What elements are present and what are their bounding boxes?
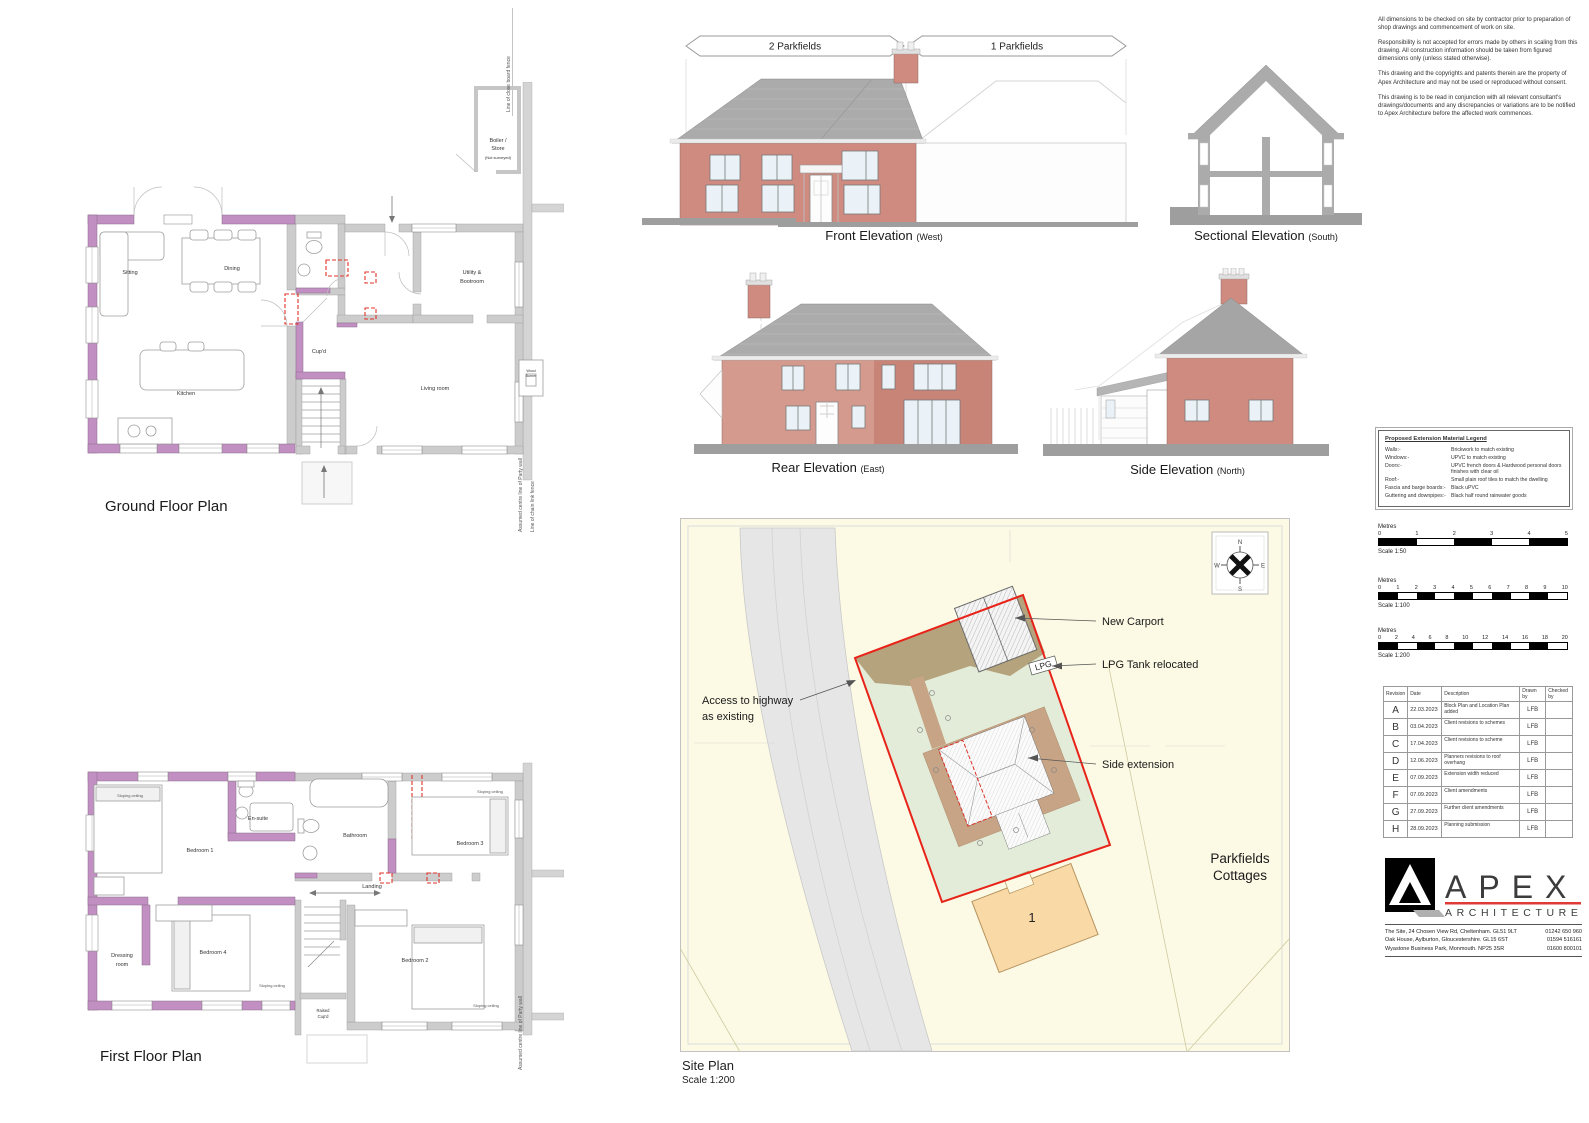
ff-label-raised-1: Raised	[316, 1008, 330, 1013]
ff-label-dressing-2: room	[116, 962, 129, 968]
note-4: This drawing is to be read in conjunctio…	[1378, 94, 1580, 118]
site-plan-title: Site Plan	[682, 1058, 735, 1073]
rev-by: LFB	[1520, 821, 1546, 838]
tick: 9	[1543, 585, 1546, 591]
ff-label-dressing-1: Dressing	[111, 953, 133, 959]
front-elevation-subtitle: (West)	[916, 232, 942, 242]
sd-ground	[1043, 444, 1329, 456]
rev-desc: Block Plan and Location Plan added	[1442, 702, 1520, 719]
ff-label-bathroom: Bathroom	[343, 833, 367, 839]
first-floor-plan-title: First Floor Plan	[100, 1048, 202, 1065]
scale-bar-1-50: Metres 012345 Scale 1:50	[1378, 524, 1568, 555]
ff-party-label: Assumed centre line of Party wall	[518, 996, 524, 1070]
address-row: Wyastone Business Park, Monmouth. NP25 3…	[1385, 945, 1582, 953]
tick: 4	[1528, 531, 1531, 537]
gf-furniture	[100, 230, 543, 444]
revision-row: G27.09.2023Further client amendmentsLFB	[1384, 804, 1573, 821]
rev-id: E	[1384, 770, 1408, 787]
ff-sloping-1: Sloping ceiling	[117, 793, 143, 798]
side-elevation-subtitle: (North)	[1217, 466, 1245, 476]
site-plan-scale: Scale 1:200	[682, 1075, 735, 1086]
side-elevation-drawing	[1035, 268, 1340, 458]
scale-ticks: 02468101214161820	[1378, 635, 1568, 641]
side-elevation-caption: Side Elevation (North)	[1035, 462, 1340, 477]
tick: 8	[1525, 585, 1528, 591]
rev-desc: Extension width reduced	[1442, 770, 1520, 787]
legend-value: Black half round rainwater goods	[1451, 493, 1563, 499]
scale-unit: Metres	[1378, 578, 1568, 584]
rev-by: LFB	[1520, 770, 1546, 787]
rev-id: F	[1384, 787, 1408, 804]
gf-label-utility-2: Bootroom	[460, 279, 484, 285]
re-porch	[700, 370, 722, 418]
rev-header: Revision	[1384, 687, 1408, 702]
revision-row: C17.04.2023Client revisions to schemeLFB	[1384, 736, 1573, 753]
gf-fence-label: Line of close board fence	[506, 56, 512, 112]
side-elevation-title: Side Elevation	[1130, 462, 1213, 477]
legend-value: Black uPVC	[1451, 485, 1563, 491]
gf-label-kitchen: Kitchen	[177, 391, 195, 397]
sp-label-cottages-1: Parkfields	[1210, 851, 1270, 866]
legend-row: Fascia and barge boards:-Black uPVC	[1385, 485, 1563, 491]
ground-floor-plan-drawing: Sitting Dining Kitchen Cup'd Utility & B…	[82, 82, 564, 527]
gf-label-dining: Dining	[224, 266, 240, 272]
legend-row: Roof:-Small plain roof tiles to match th…	[1385, 477, 1563, 483]
sp-label-lpg: LPG Tank relocated	[1102, 659, 1198, 671]
sp-label-carport: New Carport	[1102, 616, 1164, 628]
tick: 10	[1462, 635, 1468, 641]
re-back-door	[816, 402, 838, 446]
tick: 14	[1502, 635, 1508, 641]
tick: 2	[1415, 585, 1418, 591]
compass-s: S	[1238, 587, 1242, 593]
re-fascia	[712, 356, 998, 360]
gf-label-boiler-2: Store	[491, 146, 504, 152]
address-line: Wyastone Business Park, Monmouth. NP25 3…	[1385, 945, 1504, 953]
rev-date: 22.03.2023	[1408, 702, 1442, 719]
legend-title: Proposed Extension Material Legend	[1385, 436, 1563, 442]
gf-stairs	[302, 386, 340, 448]
ff-porch-below	[307, 1035, 367, 1063]
address-block: The Site, 24 Chosen View Rd, Cheltenham.…	[1385, 924, 1582, 957]
rev-desc: Planning submission	[1442, 821, 1520, 838]
legend-row: Windows:-UPVC to match existing	[1385, 455, 1563, 461]
gf-party-walls	[523, 82, 564, 480]
note-3: This drawing and the copyrights and pate…	[1378, 70, 1580, 86]
scale-label: Scale 1:50	[1378, 549, 1568, 555]
tick: 12	[1482, 635, 1488, 641]
sp-plot-1-label: 1	[1028, 910, 1035, 925]
rev-by: LFB	[1520, 736, 1546, 753]
sp-label-access-2: as existing	[702, 711, 754, 723]
rev-date: 12.06.2023	[1408, 753, 1442, 770]
tick: 4	[1412, 635, 1415, 641]
scale-label: Scale 1:200	[1378, 653, 1568, 659]
legend-value: UPVC to match existing	[1451, 455, 1563, 461]
ff-label-raised-2: Cup'd	[318, 1014, 329, 1019]
rev-by: LFB	[1520, 702, 1546, 719]
tick: 4	[1452, 585, 1455, 591]
tick: 0	[1378, 635, 1381, 641]
fe-house	[670, 42, 926, 227]
rev-id: C	[1384, 736, 1408, 753]
legend-key: Roof:-	[1385, 477, 1451, 483]
address-row: The Site, 24 Chosen View Rd, Cheltenham.…	[1385, 928, 1582, 936]
revision-row: A22.03.2023Block Plan and Location Plan …	[1384, 702, 1573, 719]
scale-label: Scale 1:100	[1378, 603, 1568, 609]
rev-by: LFB	[1520, 787, 1546, 804]
rev-checked	[1546, 753, 1573, 770]
gf-label-boiler-3: (Not surveyed)	[485, 155, 512, 160]
gf-label-utility-1: Utility &	[463, 270, 482, 276]
rev-checked	[1546, 736, 1573, 753]
rev-date: 17.04.2023	[1408, 736, 1442, 753]
gf-porch	[302, 462, 352, 504]
gf-chain-label: Line of chain link fence	[530, 481, 536, 532]
sectional-elevation-drawing	[1168, 45, 1364, 230]
rev-checked	[1546, 702, 1573, 719]
revision-row: F07.09.2023Client amendmentsLFB	[1384, 787, 1573, 804]
legend-value: Brickwork to match existing	[1451, 447, 1563, 453]
sp-label-access-1: Access to highway	[702, 695, 794, 707]
ff-sloping-2: Sloping ceiling	[477, 789, 503, 794]
rev-date: 27.09.2023	[1408, 804, 1442, 821]
ff-label-bed1: Bedroom 1	[187, 848, 214, 854]
compass-w: W	[1214, 564, 1220, 570]
gf-boiler-door	[456, 154, 476, 172]
fe-dim-left-label: 2 Parkfields	[769, 42, 821, 53]
compass-e: E	[1261, 564, 1265, 570]
rev-desc: Planners revisions to roof overhang	[1442, 753, 1520, 770]
tick: 2	[1453, 531, 1456, 537]
ground-floor-plan-title: Ground Floor Plan	[105, 498, 228, 515]
ff-sloping-4: Sloping ceiling	[473, 1003, 499, 1008]
revision-header-row: Revision Date Description Drawn by Check…	[1384, 687, 1573, 702]
ff-label-ensuite: En-suite	[248, 816, 268, 822]
rev-by: LFB	[1520, 753, 1546, 770]
revision-row: E07.09.2023Extension width reducedLFB	[1384, 770, 1573, 787]
address-phone: 01600 800101	[1547, 945, 1582, 953]
rev-date: 07.09.2023	[1408, 770, 1442, 787]
tick: 8	[1445, 635, 1448, 641]
revision-row: H28.09.2023Planning submissionLFB	[1384, 821, 1573, 838]
gf-fence-line	[512, 8, 513, 116]
rev-id: B	[1384, 719, 1408, 736]
fe-dim-right-label: 1 Parkfields	[991, 42, 1043, 53]
apex-logo-tagline: ARCHITECTURE	[1445, 907, 1582, 919]
rev-id: G	[1384, 804, 1408, 821]
sp-label-extension: Side extension	[1102, 759, 1174, 771]
scale-ticks: 012345	[1378, 531, 1568, 537]
rear-elevation-title: Rear Elevation	[772, 460, 857, 475]
legend-key: Windows:-	[1385, 455, 1451, 461]
rev-id: D	[1384, 753, 1408, 770]
rear-elevation-caption: Rear Elevation (East)	[688, 460, 968, 475]
gf-label-wood-2: Burner	[526, 374, 538, 378]
gf-label-sitting: Sitting	[122, 270, 137, 276]
scale-ticks: 012345678910	[1378, 585, 1568, 591]
compass-n: N	[1238, 540, 1242, 546]
se-section	[1170, 65, 1362, 225]
scale-bar	[1378, 642, 1568, 650]
revision-row: D12.06.2023Planners revisions to roof ov…	[1384, 753, 1573, 770]
tick: 0	[1378, 585, 1381, 591]
ff-label-bed3: Bedroom 3	[457, 841, 484, 847]
tick: 7	[1507, 585, 1510, 591]
scale-unit: Metres	[1378, 628, 1568, 634]
rev-desc: Client revisions to scheme	[1442, 736, 1520, 753]
legend-key: Fascia and barge boards:-	[1385, 485, 1451, 491]
fe-neighbour-outline	[916, 81, 1126, 225]
front-elevation-caption: Front Elevation (West)	[628, 228, 1140, 243]
sectional-elevation-title: Sectional Elevation	[1194, 228, 1305, 243]
rev-id: H	[1384, 821, 1408, 838]
tick: 3	[1433, 585, 1436, 591]
ff-sloping-3: Sloping ceiling	[259, 983, 285, 988]
rev-checked	[1546, 719, 1573, 736]
note-2: Responsibility is not accepted for error…	[1378, 39, 1580, 63]
sectional-elevation-caption: Sectional Elevation (South)	[1168, 228, 1364, 243]
apex-logo-redline	[1445, 902, 1581, 905]
legend-row: Guttering and downpipes:-Black half roun…	[1385, 493, 1563, 499]
front-elevation-drawing: 2 Parkfields 1 Parkfields	[628, 15, 1140, 227]
rev-date: 07.09.2023	[1408, 787, 1442, 804]
rev-checked	[1546, 804, 1573, 821]
rev-checked	[1546, 770, 1573, 787]
tick: 6	[1429, 635, 1432, 641]
sd-main-gable	[1155, 268, 1307, 446]
tick: 5	[1470, 585, 1473, 591]
sd-extension	[1097, 372, 1170, 446]
tick: 18	[1542, 635, 1548, 641]
gf-label-wood-1: Wood	[526, 369, 535, 373]
tick: 1	[1415, 531, 1418, 537]
apex-logo-name: APEX	[1445, 869, 1578, 905]
re-ground	[694, 444, 1018, 454]
fe-chimney	[892, 42, 920, 83]
fe-roof	[672, 79, 924, 143]
front-elevation-title: Front Elevation	[825, 228, 912, 243]
gf-label-living: Living room	[421, 386, 450, 392]
tick: 3	[1490, 531, 1493, 537]
gf-label-boiler-1: Boiler /	[489, 138, 507, 144]
rev-desc: Client revisions to schemes	[1442, 719, 1520, 736]
rev-date: 03.04.2023	[1408, 719, 1442, 736]
rev-header: Drawn by	[1520, 687, 1546, 702]
ff-party-walls	[523, 763, 564, 1035]
apex-logo: APEX ARCHITECTURE	[1383, 854, 1583, 920]
scale-bar	[1378, 538, 1568, 546]
scale-bar	[1378, 592, 1568, 600]
gf-back-door-arrow	[389, 196, 395, 223]
tick: 2	[1395, 635, 1398, 641]
gf-window-centerlines	[92, 228, 519, 450]
tick: 6	[1488, 585, 1491, 591]
address-phone: 01242 650 960	[1545, 928, 1582, 936]
sd-hedge	[1051, 408, 1093, 446]
revision-row: B03.04.2023Client revisions to schemesLF…	[1384, 719, 1573, 736]
note-1: All dimensions to be checked on site by …	[1378, 16, 1580, 32]
revision-table: Revision Date Description Drawn by Check…	[1383, 686, 1573, 838]
rear-elevation-drawing	[688, 258, 1024, 458]
legend-key: Doors:-	[1385, 463, 1451, 475]
apex-logo-icon	[1385, 858, 1445, 917]
rev-id: A	[1384, 702, 1408, 719]
legend-row: Walls:-Brickwork to match existing	[1385, 447, 1563, 453]
sp-label-cottages-2: Cottages	[1213, 868, 1267, 883]
material-legend: Proposed Extension Material Legend Walls…	[1378, 430, 1570, 507]
site-plan-drawing: 1 LPG N S E W New Carport LPG Tank reloc…	[680, 518, 1290, 1052]
site-plan-caption: Site Plan Scale 1:200	[682, 1058, 735, 1086]
rev-header: Checked by	[1546, 687, 1573, 702]
rev-by: LFB	[1520, 804, 1546, 821]
sp-compass: N S E W	[1212, 532, 1268, 594]
tick: 10	[1562, 585, 1568, 591]
gf-label-cupd: Cup'd	[312, 349, 326, 355]
rev-desc: Client amendments	[1442, 787, 1520, 804]
ff-label-bed2: Bedroom 2	[402, 958, 429, 964]
rev-by: LFB	[1520, 719, 1546, 736]
legend-key: Walls:-	[1385, 447, 1451, 453]
first-floor-plan-drawing: Bedroom 1 En-suite Bathroom Bedroom 3 La…	[82, 745, 564, 1075]
rev-checked	[1546, 821, 1573, 838]
legend-value: Small plain roof tiles to match the dwel…	[1451, 477, 1563, 483]
sectional-elevation-subtitle: (South)	[1308, 232, 1338, 242]
re-chimney	[746, 273, 772, 318]
gf-party-label: Assumed centre line of Party wall	[518, 458, 524, 532]
legend-value: UPVC french doors & Hardwood personal do…	[1451, 463, 1563, 475]
tick: 5	[1565, 531, 1568, 537]
tick: 16	[1522, 635, 1528, 641]
fe-fascia	[670, 139, 926, 143]
address-line: Oak House, Aylburton, Gloucestershire. G…	[1385, 936, 1508, 944]
ff-label-landing: Landing	[362, 884, 382, 890]
tick: 20	[1562, 635, 1568, 641]
address-phone: 01594 516161	[1547, 936, 1582, 944]
scale-bar-1-200: Metres 02468101214161820 Scale 1:200	[1378, 628, 1568, 659]
rev-header: Description	[1442, 687, 1520, 702]
scale-unit: Metres	[1378, 524, 1568, 530]
rev-checked	[1546, 787, 1573, 804]
rear-elevation-subtitle: (East)	[860, 464, 884, 474]
legend-key: Guttering and downpipes:-	[1385, 493, 1451, 499]
address-line: The Site, 24 Chosen View Rd, Cheltenham.…	[1385, 928, 1517, 936]
rev-desc: Further client amendments	[1442, 804, 1520, 821]
rev-header: Date	[1408, 687, 1442, 702]
ff-label-bed4: Bedroom 4	[200, 950, 227, 956]
scale-bar-1-100: Metres 012345678910 Scale 1:100	[1378, 578, 1568, 609]
legend-row: Doors:-UPVC french doors & Hardwood pers…	[1385, 463, 1563, 475]
tick: 1	[1396, 585, 1399, 591]
general-notes: All dimensions to be checked on site by …	[1378, 16, 1580, 125]
tick: 0	[1378, 531, 1381, 537]
address-row: Oak House, Aylburton, Gloucestershire. G…	[1385, 936, 1582, 944]
rev-date: 28.09.2023	[1408, 821, 1442, 838]
